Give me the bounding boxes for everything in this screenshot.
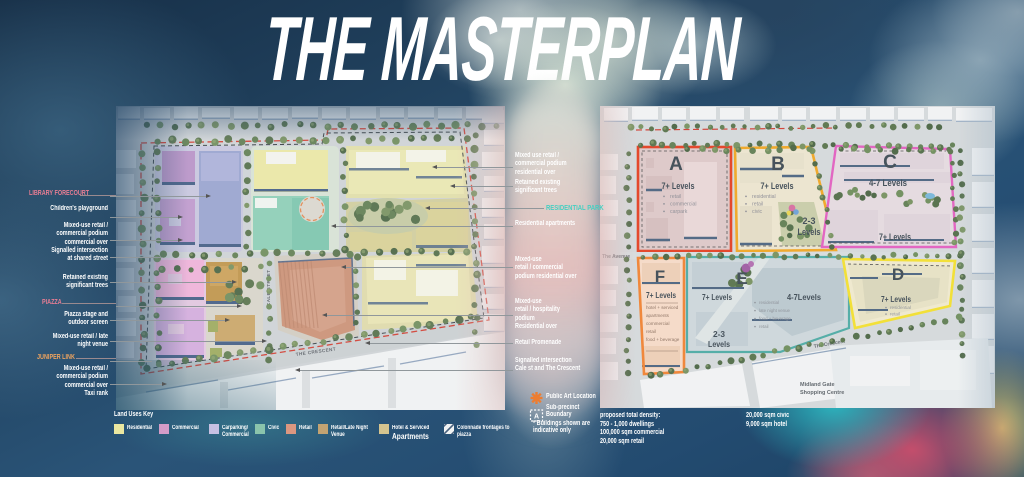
svg-text:A: A bbox=[534, 414, 539, 421]
